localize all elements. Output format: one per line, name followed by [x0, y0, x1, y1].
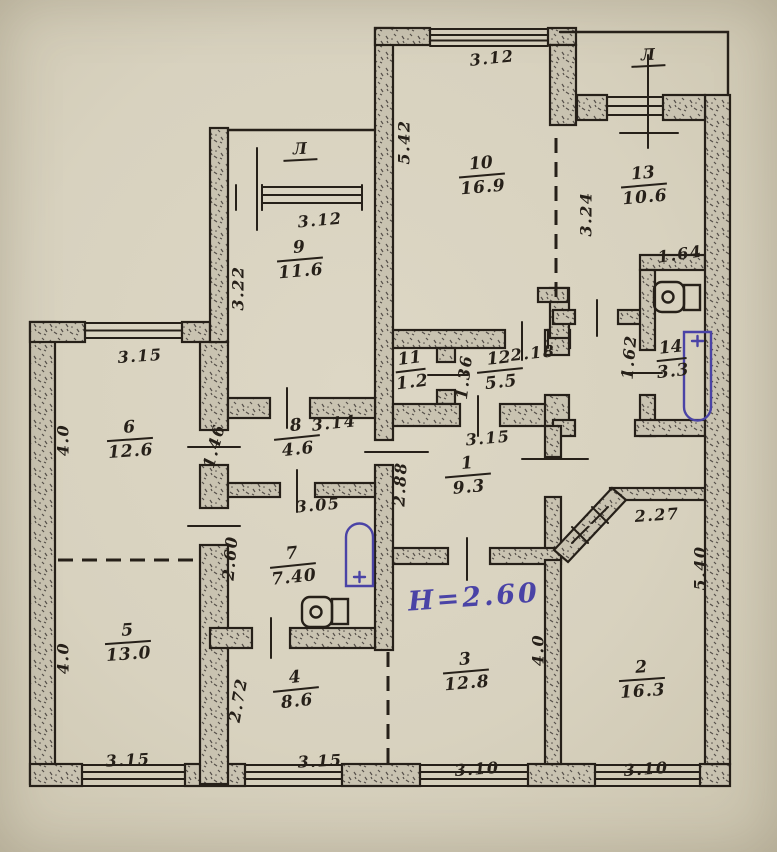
dim-label-3.15: 3.15 [465, 427, 511, 450]
dim-label-3.15: 3.15 [297, 750, 343, 771]
dim-label-3.05: 3.05 [295, 494, 341, 517]
room-13-label: 1310.6 [619, 164, 668, 209]
dim-label-3.15: 3.15 [117, 345, 163, 367]
dim-label-5.40: 5.40 [691, 546, 710, 591]
dim-label-2.88: 2.88 [389, 461, 410, 507]
room-number: 10 [457, 154, 504, 175]
room-6-label: 612.6 [106, 418, 155, 462]
room-number: 12 [475, 348, 523, 370]
room-number: 14 [654, 338, 688, 358]
room-number: 9 [275, 238, 322, 259]
room-area: 12.6 [107, 441, 154, 462]
room-number: 13 [619, 164, 666, 185]
room-5-label: 513.0 [104, 621, 153, 665]
dim-label-2.60: 2.60 [219, 535, 242, 581]
room-3-label: 312.8 [441, 650, 490, 695]
room-number: 3 [441, 650, 488, 671]
room-area: 7.40 [270, 566, 318, 589]
dim-label-1.64: 1.64 [656, 241, 703, 266]
dim-label-3.10: 3.10 [623, 758, 669, 780]
room-12-label: 125.5 [475, 348, 525, 394]
ceiling-height-note: Н=2.60 [407, 577, 541, 617]
room-number: 4 [271, 667, 319, 689]
balcony-label: Л [630, 44, 665, 68]
room-area: 16.9 [459, 176, 506, 198]
room-2-label: 216.3 [618, 658, 667, 702]
room-number: 7 [268, 543, 316, 565]
dim-label-5.42: 5.42 [395, 120, 414, 165]
dim-label-3.24: 3.24 [577, 192, 596, 237]
dim-label-3.10: 3.10 [454, 758, 500, 780]
room-area: 13.0 [105, 644, 152, 665]
room-9-label: 911.6 [275, 238, 324, 283]
dim-label-3.15: 3.15 [105, 749, 151, 770]
room-1-label: 19.3 [443, 454, 492, 499]
room-number: 5 [104, 621, 151, 641]
dim-label-3.22: 3.22 [229, 266, 248, 311]
room-area: 12.8 [443, 672, 490, 694]
room-7-label: 77.40 [268, 543, 318, 589]
room-4-label: 48.6 [271, 667, 321, 713]
room-area: 11.6 [277, 260, 324, 282]
room-area: 3.3 [656, 361, 690, 382]
dim-label-1.46: 1.46 [199, 422, 229, 470]
dim-label-4.0: 4.0 [529, 634, 548, 666]
dim-label-2.72: 2.72 [225, 676, 252, 724]
room-14-label: 143.3 [654, 338, 691, 382]
room-number: 11 [392, 349, 426, 370]
floor-plan-sheet: 3.125.423.241.643.123.221.362.181.623.15… [0, 0, 777, 852]
balcony-label: Л [282, 138, 317, 162]
plan-labels: 3.125.423.241.643.123.221.362.181.623.15… [0, 0, 777, 852]
dim-label-4.0: 4.0 [54, 424, 73, 456]
room-8-label: 84.6 [272, 415, 322, 461]
room-number: 1 [443, 454, 490, 475]
room-11-label: 111.2 [392, 349, 429, 394]
room-area: 9.3 [445, 476, 492, 498]
room-number: 8 [272, 415, 320, 437]
room-area: 1.2 [395, 371, 430, 393]
room-area: 16.3 [619, 681, 666, 702]
dim-label-4.0: 4.0 [54, 642, 73, 674]
dim-label-2.27: 2.27 [634, 504, 680, 526]
room-10-label: 1016.9 [457, 154, 506, 199]
room-number: 6 [106, 418, 153, 438]
dim-label-3.12: 3.12 [297, 209, 343, 232]
dim-label-1.62: 1.62 [618, 334, 641, 380]
room-area: 4.6 [274, 438, 322, 461]
dim-label-3.12: 3.12 [469, 46, 516, 70]
room-area: 5.5 [477, 371, 525, 394]
room-number: 2 [618, 658, 665, 678]
dim-label-1.36: 1.36 [452, 354, 476, 401]
room-area: 10.6 [621, 186, 668, 208]
room-area: 8.6 [273, 690, 321, 713]
